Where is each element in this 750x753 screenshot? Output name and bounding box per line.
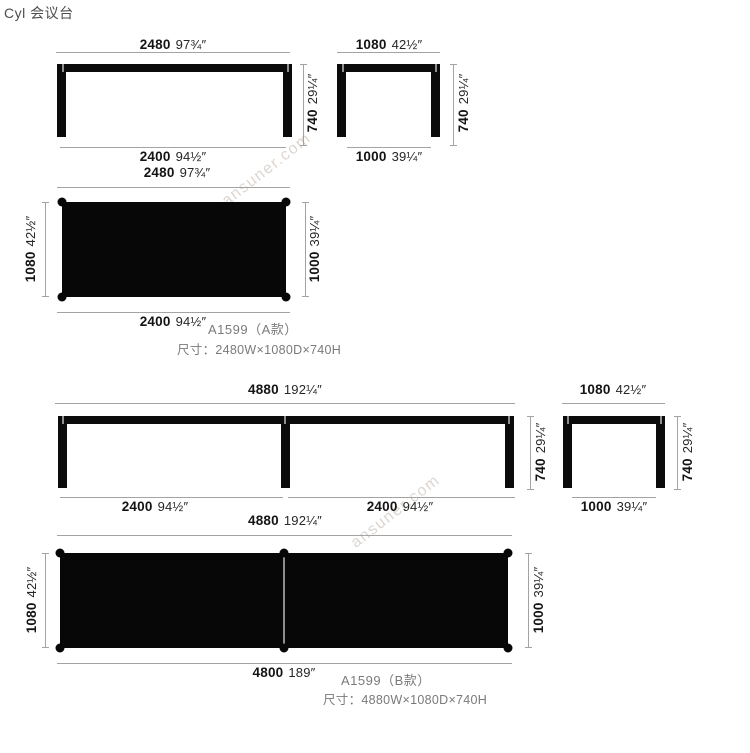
table-leg [656,416,665,488]
leg-dot [58,198,67,207]
dim-mm: 740 [305,109,321,132]
dim-mm: 2400 [367,500,398,514]
tabletop [58,416,514,424]
dim-inches: 94½″ [403,500,434,514]
dim-line [337,52,440,53]
dim-line-vertical [305,202,306,297]
dim-inches: 42½″ [24,567,40,598]
dim-inches: 97¾″ [180,166,211,180]
table-leg [337,64,346,137]
dim-b-plan-base: 4800 189″ [253,666,316,680]
dim-inches: 189″ [288,666,315,680]
dim-mm: 1080 [24,602,40,633]
dim-inches: 42½″ [23,216,39,247]
dim-line-vertical [45,553,46,648]
dim-mm: 1000 [581,500,612,514]
dim-inches: 39¼″ [392,150,423,164]
leg-seam [342,64,344,72]
tabletop [563,416,665,424]
dim-mm: 2400 [140,315,171,329]
leg-dot [504,644,513,653]
dim-line [347,147,431,148]
leg-dot [56,644,65,653]
dim-line [288,497,515,498]
dim-mm: 2400 [122,500,153,514]
leg-seam [62,416,64,424]
dim-mm: 2400 [140,150,171,164]
model-b-size: 尺寸：4880W×1080D×740H [323,689,487,708]
dim-line [57,187,290,188]
table-leg [57,64,66,137]
dim-mm: 1080 [580,383,611,397]
table-leg [431,64,440,137]
dim-b-side-width: 1080 42½″ [580,383,647,397]
dim-inches: 42½″ [392,38,423,52]
dim-inches: 29¼″ [456,74,472,105]
dim-inches: 192¼″ [284,383,322,397]
tabletop [57,64,292,72]
dim-mm: 4800 [253,666,284,680]
dim-inches: 29¼″ [533,423,549,454]
dim-a-plan-depth: 1080 42½″ [23,204,39,294]
dim-inches: 39¼″ [617,500,648,514]
dim-a-side-height: 740 29¼″ [456,58,472,148]
dim-inches: 42½″ [616,383,647,397]
dim-inches: 29¼″ [305,74,321,105]
dim-mm: 4880 [248,514,279,528]
dim-inches: 29¼″ [680,423,696,454]
dim-mm: 1000 [356,150,387,164]
dim-inches: 94½″ [176,315,207,329]
dim-mm: 1080 [356,38,387,52]
leg-dot [56,549,65,558]
diagram-canvas: Cyl 会议台 ansuner.com ansuner.com 2480 97¾… [0,0,750,753]
dim-a-plan-depth-floor: 1000 39¼″ [307,204,323,294]
dim-inches: 39¼″ [307,216,323,247]
dim-b-side-base: 1000 39¼″ [581,500,648,514]
leg-dot [58,293,67,302]
table-leg [283,64,292,137]
table-leg [505,416,514,488]
tabletop-plan [62,202,286,297]
dim-mm: 2480 [140,38,171,52]
leg-seam [435,64,437,72]
leg-dot [280,549,289,558]
dim-mm: 4880 [248,383,279,397]
dim-line [57,663,512,664]
dim-b-plan-depth-floor: 1000 39¼″ [531,555,547,645]
table-leg [281,416,290,488]
dim-line-vertical [528,553,529,648]
page-title: Cyl 会议台 [4,3,74,23]
dim-line-vertical [45,202,46,297]
dim-b-plan-width: 4880 192¼″ [248,514,322,528]
dim-a-front-height: 740 29¼″ [305,58,321,148]
leg-seam [284,416,286,424]
dim-line [60,497,283,498]
dim-line [572,497,656,498]
dim-line-vertical [530,416,531,490]
leg-dot [280,644,289,653]
dim-b-front-seg2: 2400 94½″ [367,500,434,514]
dim-b-front-height: 740 29¼″ [533,407,549,497]
dim-a-plan-width: 2480 97¾″ [144,166,211,180]
dim-b-plan-depth: 1080 42½″ [24,555,40,645]
dim-a-front-base: 2400 94½″ [140,150,207,164]
dim-inches: 94½″ [176,150,207,164]
dim-a-front-width: 2480 97¾″ [140,38,207,52]
leg-seam [508,416,510,424]
dim-b-front-width: 4880 192¼″ [248,383,322,397]
dim-line [55,403,515,404]
dim-mm: 740 [456,109,472,132]
dim-inches: 94½″ [158,500,189,514]
dim-a-side-base: 1000 39¼″ [356,150,423,164]
tabletop-divider [283,553,285,648]
dim-mm: 1080 [23,251,39,282]
table-leg [563,416,572,488]
dim-mm: 1000 [307,251,323,282]
dim-line [57,312,290,313]
leg-seam [567,416,569,424]
dim-mm: 740 [533,458,549,481]
model-a-code: A1599（A款） [208,319,298,338]
tabletop [337,64,440,72]
model-a-size: 尺寸：2480W×1080D×740H [177,339,341,358]
dim-inches: 39¼″ [531,567,547,598]
leg-seam [62,64,64,72]
leg-seam [287,64,289,72]
dim-a-side-width: 1080 42½″ [356,38,423,52]
dim-b-front-seg1: 2400 94½″ [122,500,189,514]
model-b-code: A1599（B款） [341,670,431,689]
dim-line-vertical [303,64,304,146]
dim-line [57,535,512,536]
leg-dot [282,198,291,207]
dim-line [60,147,286,148]
dim-mm: 740 [680,458,696,481]
dim-line-vertical [677,416,678,490]
dim-mm: 1000 [531,602,547,633]
dim-mm: 2480 [144,166,175,180]
dim-line [56,52,290,53]
leg-seam [660,416,662,424]
leg-dot [282,293,291,302]
table-leg [58,416,67,488]
dim-inches: 97¾″ [176,38,207,52]
dim-line [562,403,665,404]
leg-dot [504,549,513,558]
dim-b-side-height: 740 29¼″ [680,407,696,497]
dim-inches: 192¼″ [284,514,322,528]
dim-a-plan-base: 2400 94½″ [140,315,207,329]
dim-line-vertical [453,64,454,146]
